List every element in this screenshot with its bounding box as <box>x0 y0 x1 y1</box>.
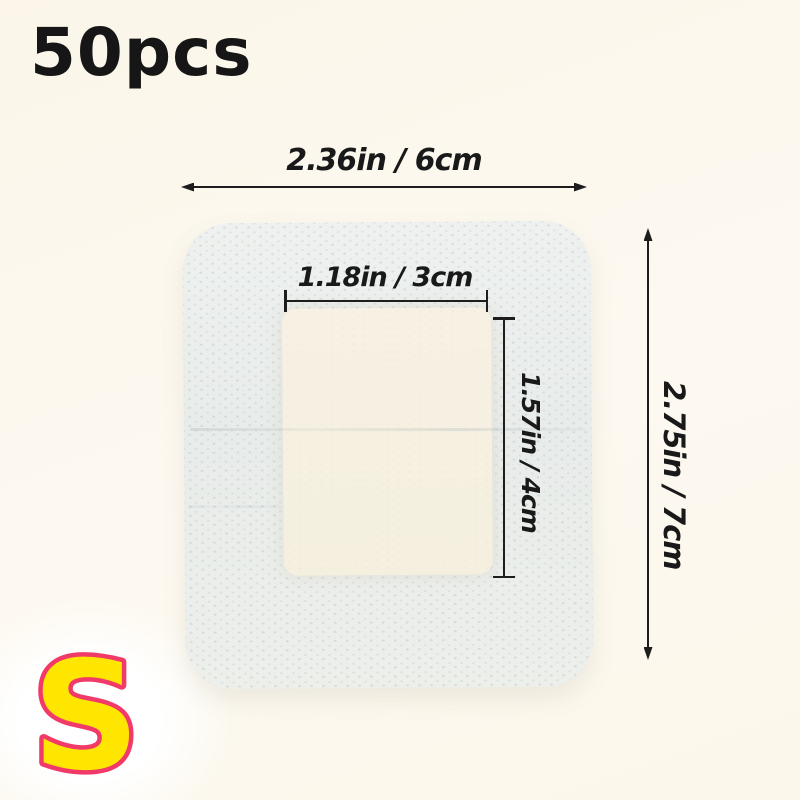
arrow-line <box>647 232 649 656</box>
product-image: 50pcs 2.36in / 6cm 1.18in / 3cm 1.57in /… <box>0 0 800 800</box>
outer-width-arrow <box>181 180 587 194</box>
dimension-line <box>503 317 505 578</box>
pad-height-label: 1.57in / 4cm <box>511 330 545 575</box>
end-tick-bottom <box>493 576 515 579</box>
size-letter: S <box>32 636 140 792</box>
pad-width-line <box>284 290 488 312</box>
bandage-absorbent-pad <box>282 307 493 575</box>
arrowhead-right-icon <box>574 183 587 192</box>
outer-width-label: 2.36in / 6cm <box>234 143 534 178</box>
size-badge: S <box>18 636 154 792</box>
arrowhead-down-icon <box>644 647 653 660</box>
pad-width-label: 1.18in / 3cm <box>261 262 509 293</box>
bandage-crease <box>188 505 283 508</box>
dimension-line <box>284 300 488 302</box>
end-tick-right <box>486 290 489 312</box>
arrow-line <box>185 186 583 188</box>
outer-height-label: 2.75in / 7cm <box>653 373 691 578</box>
quantity-label: 50pcs <box>30 14 253 91</box>
